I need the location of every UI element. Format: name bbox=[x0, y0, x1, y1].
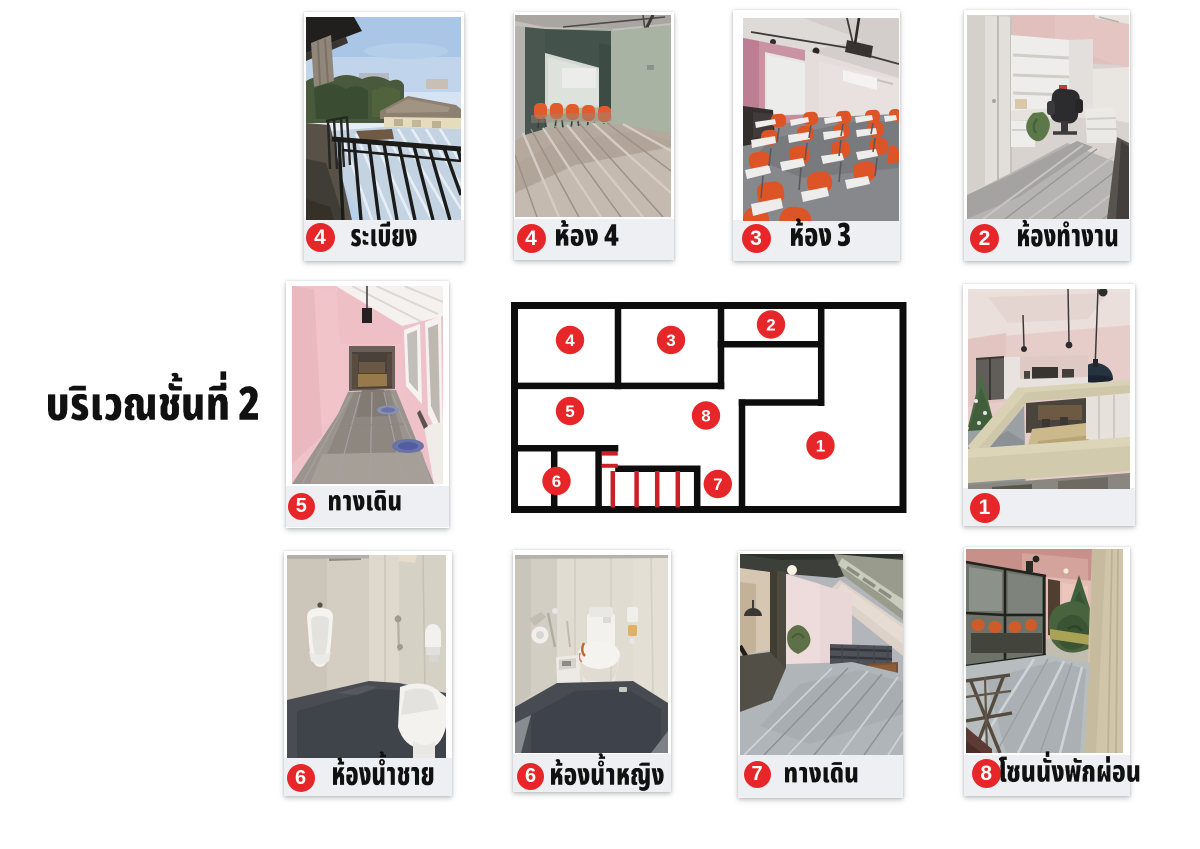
svg-text:4: 4 bbox=[565, 331, 575, 350]
svg-text:1: 1 bbox=[816, 437, 825, 456]
svg-text:5: 5 bbox=[565, 402, 574, 421]
svg-text:7: 7 bbox=[713, 475, 722, 494]
svg-text:3: 3 bbox=[666, 331, 675, 350]
svg-text:6: 6 bbox=[552, 472, 561, 491]
svg-text:8: 8 bbox=[701, 407, 710, 426]
svg-text:2: 2 bbox=[766, 316, 775, 335]
